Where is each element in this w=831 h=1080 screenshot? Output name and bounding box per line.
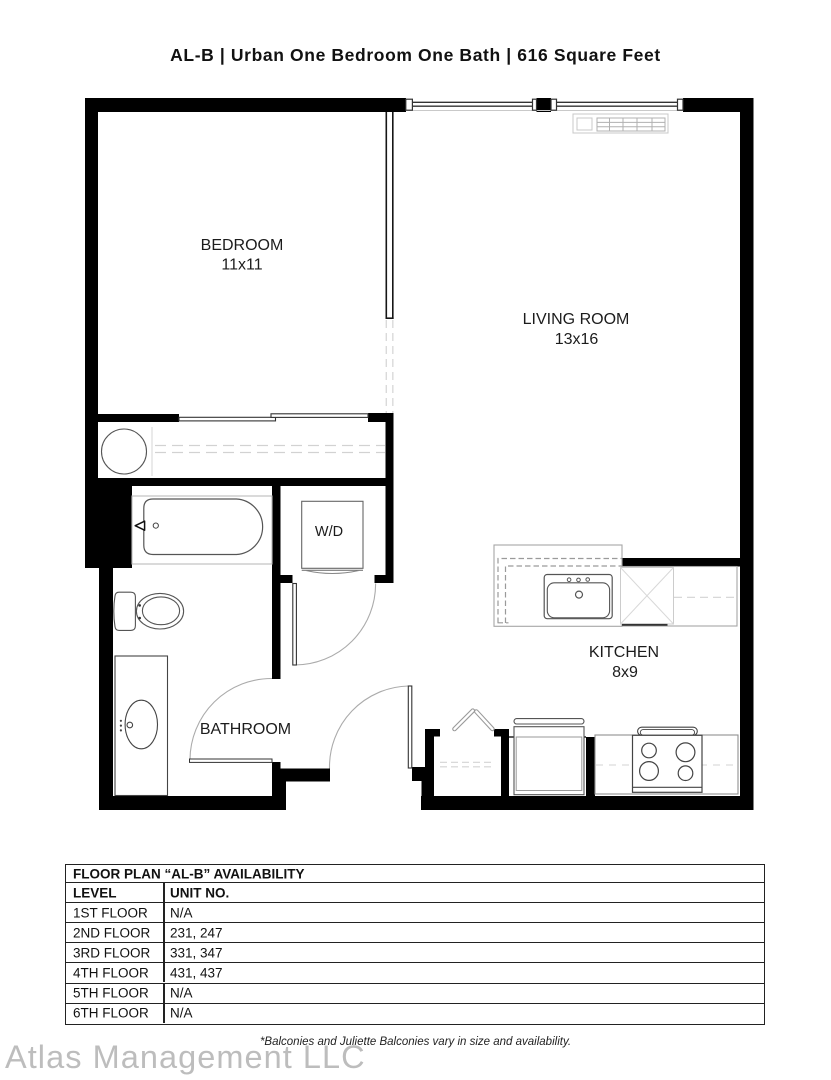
svg-text:KITCHEN: KITCHEN	[589, 644, 659, 661]
svg-text:11x11: 11x11	[221, 257, 262, 274]
svg-text:W/D: W/D	[315, 524, 343, 540]
svg-text:BATHROOM: BATHROOM	[200, 721, 291, 738]
svg-text:LIVING ROOM: LIVING ROOM	[523, 311, 630, 328]
svg-text:8x9: 8x9	[612, 664, 638, 681]
svg-text:13x16: 13x16	[555, 331, 599, 348]
svg-text:BEDROOM: BEDROOM	[201, 237, 284, 254]
